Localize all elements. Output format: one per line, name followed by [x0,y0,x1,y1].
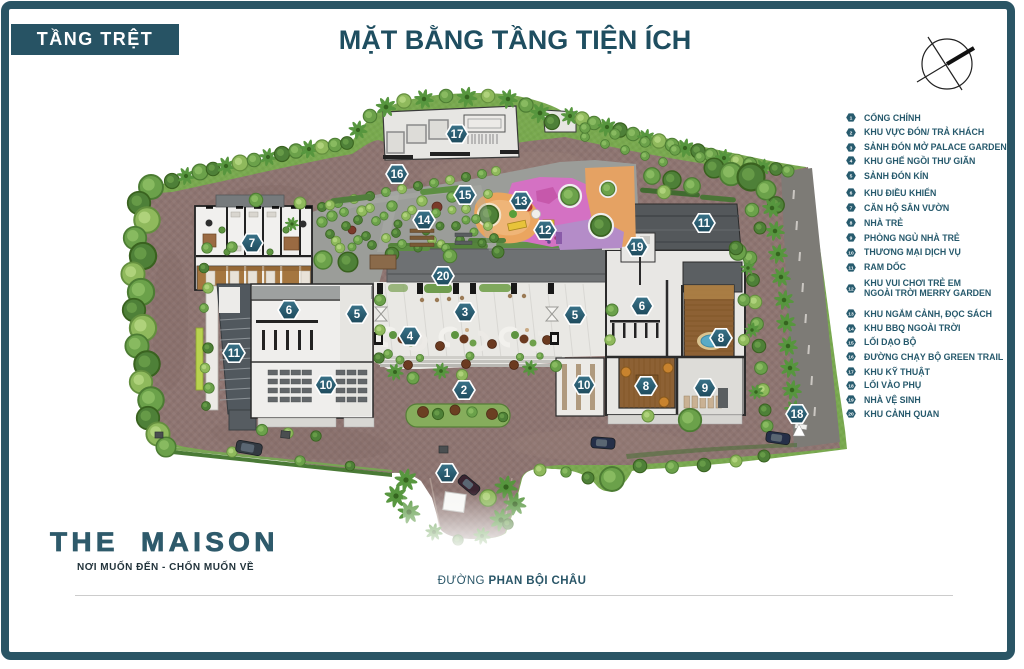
svg-text:18: 18 [791,409,804,421]
svg-text:14: 14 [848,326,854,332]
svg-text:5: 5 [354,309,361,321]
svg-text:14: 14 [418,215,431,227]
svg-text:6: 6 [850,191,853,197]
svg-text:15: 15 [848,340,854,346]
svg-text:3: 3 [850,145,853,151]
svg-text:19: 19 [631,242,644,254]
svg-text:11: 11 [228,348,241,360]
svg-text:9: 9 [850,236,853,242]
svg-text:10: 10 [320,380,333,392]
svg-text:5: 5 [572,310,579,322]
svg-text:4: 4 [850,159,853,165]
svg-text:8: 8 [643,381,650,393]
svg-text:4: 4 [407,331,414,343]
svg-text:8: 8 [718,333,725,345]
svg-text:6: 6 [639,301,645,313]
svg-text:6: 6 [286,305,292,317]
svg-text:7: 7 [249,238,255,250]
svg-text:12: 12 [539,225,552,237]
svg-text:17: 17 [848,370,854,376]
svg-text:8: 8 [850,221,853,227]
svg-text:3: 3 [462,307,468,319]
svg-text:16: 16 [391,169,404,181]
svg-text:10: 10 [578,380,591,392]
svg-text:2: 2 [461,385,467,397]
svg-text:12: 12 [848,286,854,292]
svg-text:7: 7 [850,206,853,212]
svg-text:20: 20 [848,412,854,418]
svg-text:16: 16 [848,355,854,361]
svg-text:15: 15 [459,190,472,202]
svg-text:2: 2 [850,130,853,136]
svg-text:13: 13 [515,196,528,208]
svg-text:1: 1 [444,468,451,480]
svg-text:17: 17 [451,129,464,141]
svg-text:18: 18 [848,383,854,389]
svg-text:9: 9 [702,383,708,395]
svg-text:13: 13 [848,312,854,318]
svg-text:19: 19 [848,398,854,404]
svg-text:10: 10 [848,250,854,256]
svg-text:5: 5 [850,174,853,180]
svg-text:20: 20 [437,271,450,283]
svg-text:11: 11 [848,265,853,271]
svg-text:1: 1 [850,116,853,122]
svg-text:11: 11 [698,218,711,230]
